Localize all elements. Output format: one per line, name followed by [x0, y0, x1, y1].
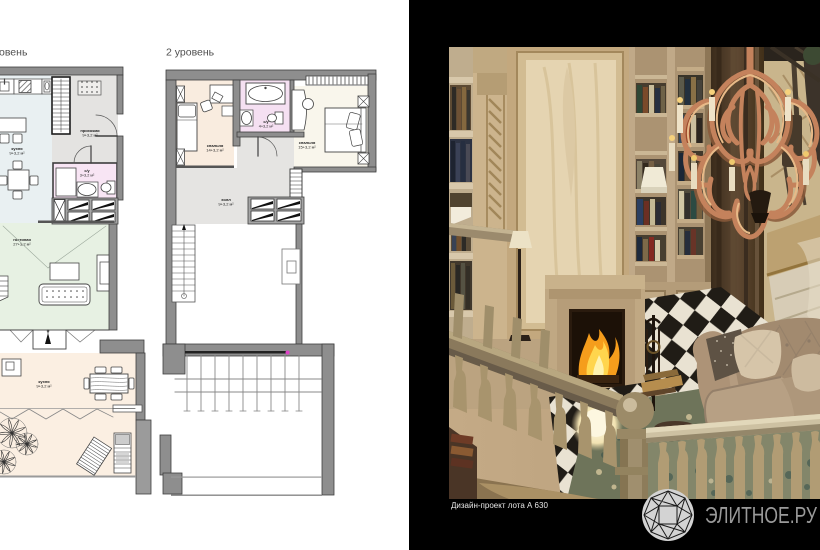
svg-text:9+3,2 м²: 9+3,2 м² — [9, 151, 25, 156]
svg-text:2 уровень: 2 уровень — [166, 47, 215, 59]
svg-text:9+3,2 м²: 9+3,2 м² — [36, 384, 52, 389]
svg-text:с/у: с/у — [263, 120, 269, 124]
svg-text:3+3,2 м²: 3+3,2 м² — [80, 174, 95, 178]
svg-text:15+3,2 м²: 15+3,2 м² — [298, 145, 316, 150]
svg-text:9+3,2 м²: 9+3,2 м² — [82, 133, 98, 138]
svg-text:с/у: с/у — [84, 169, 90, 173]
svg-text:14+3,2 м²: 14+3,2 м² — [206, 148, 224, 153]
svg-text:9+3,2 м²: 9+3,2 м² — [218, 202, 234, 207]
svg-text:4+3,2 м²: 4+3,2 м² — [259, 125, 274, 129]
svg-text:овень: овень — [0, 47, 28, 59]
svg-text:ЭЛИТНОЕ.РУ: ЭЛИТНОЕ.РУ — [705, 502, 817, 528]
